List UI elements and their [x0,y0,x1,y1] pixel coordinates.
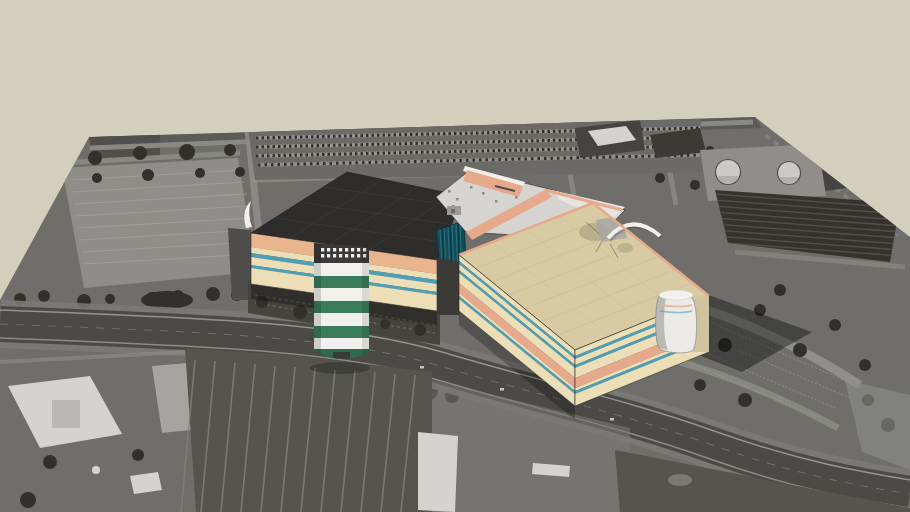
entrance-drum-tower [312,243,371,367]
model-viewport[interactable] [0,0,910,512]
scene-svg [0,0,910,512]
parking-lot-south [181,348,432,512]
service-gap [437,258,460,315]
corner-cylinder-tower [656,290,697,353]
